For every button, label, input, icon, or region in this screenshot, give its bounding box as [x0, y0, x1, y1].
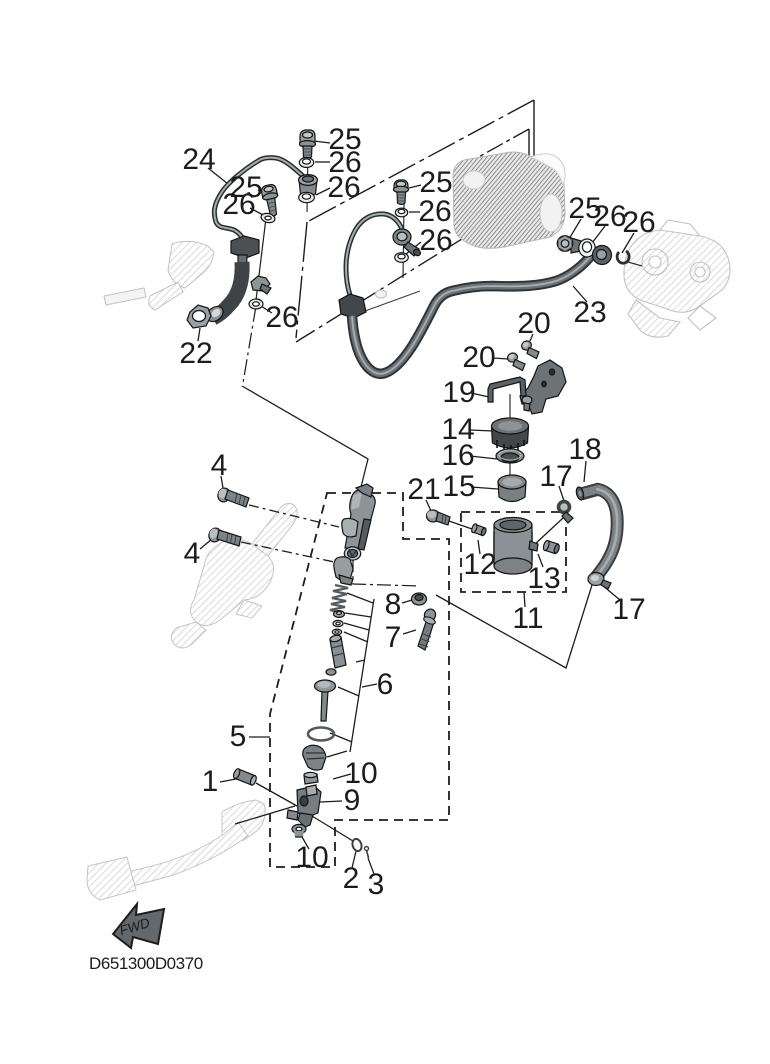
svg-text:26: 26 — [327, 171, 360, 204]
svg-text:6: 6 — [377, 668, 394, 701]
svg-text:23: 23 — [573, 296, 606, 329]
svg-text:1: 1 — [202, 765, 219, 798]
svg-text:D651300D0370: D651300D0370 — [89, 954, 203, 973]
svg-text:4: 4 — [184, 537, 201, 570]
svg-text:13: 13 — [527, 562, 560, 595]
svg-text:26: 26 — [622, 206, 655, 239]
svg-text:26: 26 — [222, 188, 255, 221]
svg-text:20: 20 — [517, 307, 550, 340]
svg-text:26: 26 — [419, 224, 452, 257]
svg-text:11: 11 — [512, 602, 543, 635]
svg-text:26: 26 — [265, 301, 298, 334]
svg-text:18: 18 — [568, 433, 601, 466]
svg-text:19: 19 — [442, 376, 475, 409]
svg-text:10: 10 — [295, 841, 328, 874]
svg-text:21: 21 — [407, 473, 440, 506]
svg-text:15: 15 — [442, 470, 475, 503]
svg-text:2: 2 — [343, 862, 360, 895]
svg-text:24: 24 — [182, 143, 215, 176]
svg-text:4: 4 — [211, 449, 228, 482]
svg-text:5: 5 — [230, 720, 247, 753]
svg-text:22: 22 — [179, 337, 212, 370]
svg-text:20: 20 — [462, 341, 495, 374]
svg-text:16: 16 — [441, 439, 474, 472]
svg-text:3: 3 — [368, 868, 385, 901]
svg-text:17: 17 — [539, 460, 572, 493]
svg-text:7: 7 — [385, 621, 402, 654]
svg-text:12: 12 — [463, 548, 496, 581]
svg-text:17: 17 — [612, 593, 645, 626]
svg-text:9: 9 — [344, 784, 361, 817]
svg-text:8: 8 — [385, 588, 402, 621]
